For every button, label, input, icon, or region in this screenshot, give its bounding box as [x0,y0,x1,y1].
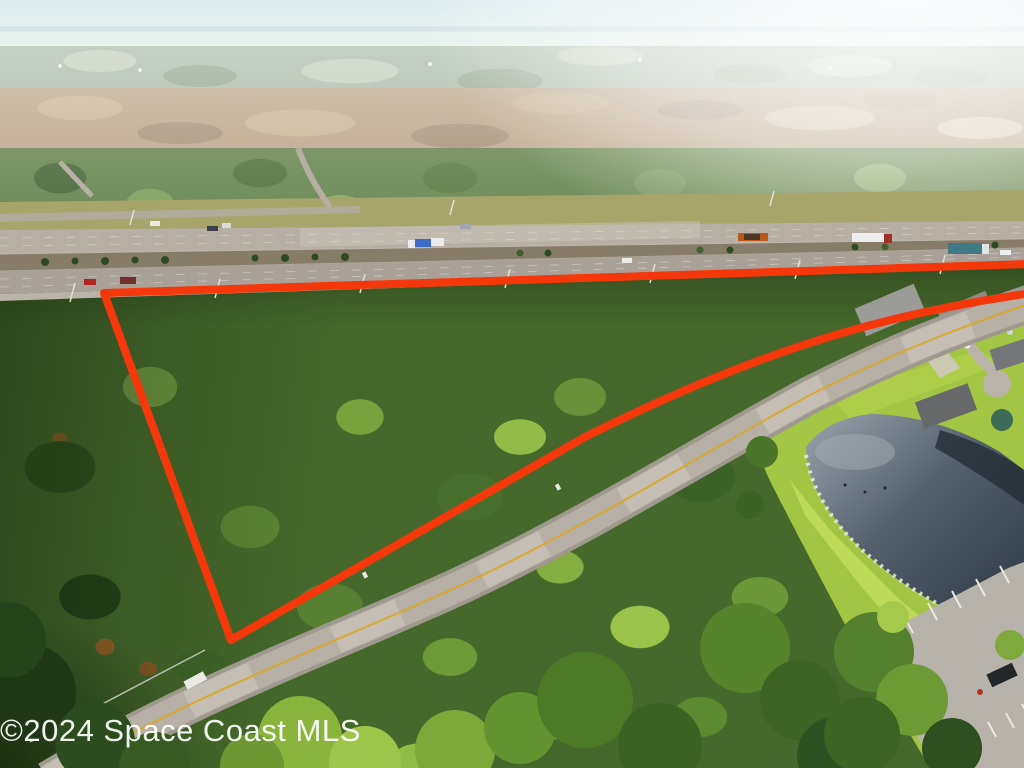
road-sign [362,571,368,578]
yard-tree [991,409,1013,431]
maroon-van [120,277,136,284]
red-object [977,689,983,695]
cul-de-sac [983,370,1011,398]
white-semi-trailer [852,233,884,242]
scene-vector-layer [0,0,1024,768]
white-sedan [1000,250,1011,255]
white-car [622,258,632,263]
cross-street [298,148,330,207]
frontage-car-2 [222,223,231,228]
tanker-cab [982,244,989,254]
semi-cab [408,240,415,248]
flatbed-load [744,234,760,240]
dark-car [207,226,218,231]
frontage-car-1 [150,221,160,226]
aerial-photo: ©2024 Space Coast MLS [0,0,1024,768]
side-street [60,162,92,196]
white-trailer [431,238,444,246]
red-semi-cab [884,234,892,243]
teal-tanker-truck [948,243,982,254]
blue-trailer [415,239,431,247]
gray-car [460,224,471,229]
mls-watermark: ©2024 Space Coast MLS [0,713,1024,749]
water-sheen [815,434,895,470]
red-car [84,279,96,285]
road-sign [555,483,561,490]
